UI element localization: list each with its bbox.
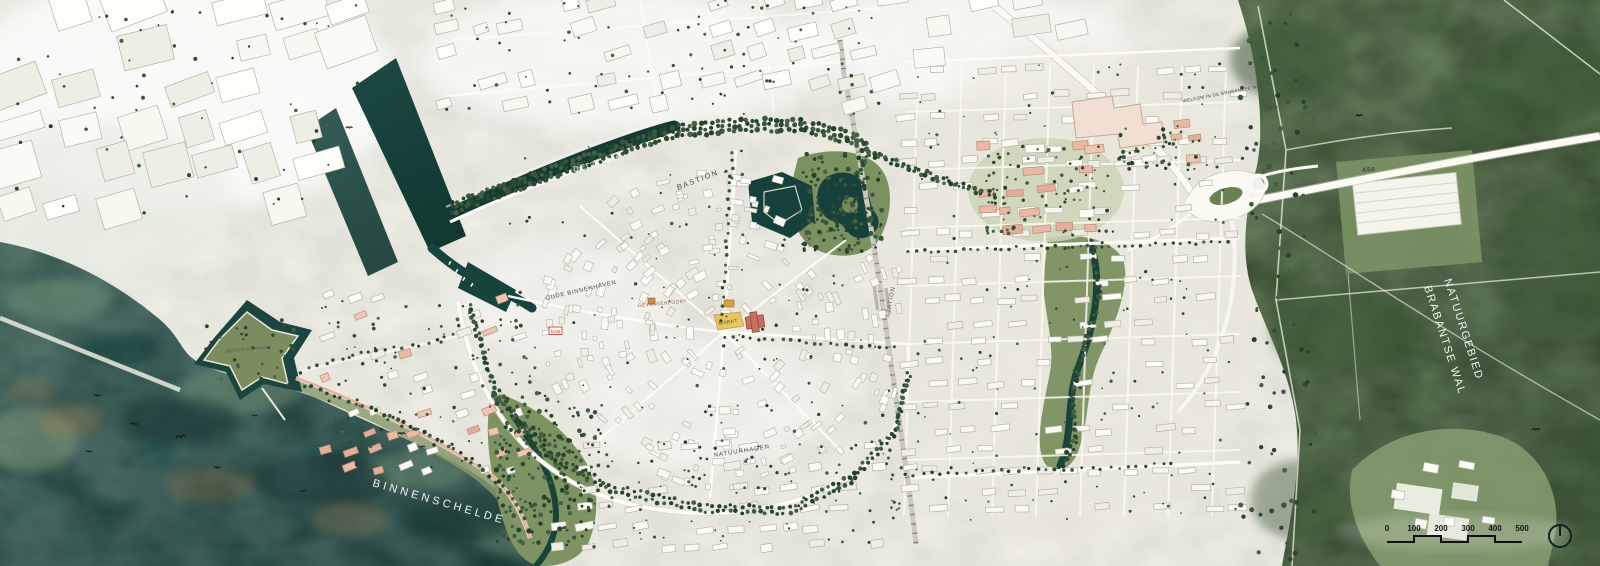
tree [578, 112, 580, 114]
tree [1226, 240, 1230, 244]
tree [861, 181, 865, 185]
tree [572, 321, 575, 324]
tree [211, 82, 213, 84]
tree [692, 121, 698, 127]
tree [469, 303, 472, 306]
tree [687, 470, 690, 473]
tree [1081, 358, 1085, 362]
tree [854, 143, 859, 148]
tree [813, 221, 816, 224]
building [848, 331, 855, 340]
tree [549, 414, 553, 418]
building [1088, 469, 1100, 476]
tree [853, 215, 857, 219]
tree [1075, 167, 1078, 170]
tree [500, 435, 502, 437]
tree [545, 409, 548, 412]
tree [1163, 462, 1166, 465]
tree [719, 128, 725, 134]
tree [1152, 405, 1155, 408]
tree [783, 238, 786, 241]
tree [299, 371, 302, 374]
building [1163, 92, 1182, 99]
tree [513, 413, 517, 417]
tree [509, 444, 512, 447]
tree [505, 397, 510, 402]
tree [1252, 148, 1255, 151]
tree [472, 358, 474, 360]
tree [816, 121, 821, 126]
tree [922, 472, 925, 475]
tree [581, 505, 584, 508]
tree [850, 447, 853, 450]
tree [588, 146, 590, 148]
tree [482, 356, 487, 361]
tree [831, 204, 836, 209]
tree [1151, 278, 1153, 280]
tree [965, 472, 968, 475]
tree [711, 511, 715, 515]
tree [954, 250, 957, 253]
tree [1156, 164, 1159, 167]
tree [325, 392, 329, 396]
building [658, 441, 672, 450]
tree [370, 446, 373, 449]
tree [475, 196, 480, 201]
tree [633, 490, 636, 493]
tree [539, 432, 544, 437]
tree [582, 474, 585, 477]
tree [854, 244, 857, 247]
tree [562, 478, 567, 483]
tree [761, 328, 764, 331]
tree [1071, 390, 1075, 394]
tree [1299, 347, 1304, 352]
tree [721, 286, 724, 289]
tree [1134, 380, 1137, 383]
tree [525, 442, 529, 446]
tree [720, 422, 722, 424]
tree [647, 131, 651, 135]
tree [1307, 350, 1310, 353]
tree [1062, 469, 1065, 472]
tree [800, 500, 803, 503]
tree [502, 474, 505, 477]
tree [825, 510, 828, 513]
tree [815, 497, 819, 501]
tree [1062, 147, 1065, 150]
tree [486, 27, 488, 29]
tree [714, 254, 716, 256]
tree [500, 410, 504, 414]
tree [1065, 198, 1067, 200]
tree [508, 49, 511, 52]
tree [233, 358, 237, 362]
tree [823, 170, 827, 174]
tree [994, 247, 997, 250]
building [903, 404, 917, 410]
tree [1301, 194, 1305, 198]
tree [986, 288, 989, 291]
building [1186, 154, 1200, 162]
tree [996, 134, 998, 136]
tree [668, 497, 671, 500]
building [901, 448, 916, 456]
tree [452, 447, 455, 450]
tree [992, 161, 995, 164]
tree [443, 335, 446, 338]
building [1174, 119, 1190, 129]
tree [953, 183, 957, 187]
tree [885, 346, 888, 349]
tree [923, 248, 927, 252]
tree [523, 430, 527, 434]
tree [631, 297, 633, 299]
tree [819, 452, 821, 454]
tree [380, 376, 383, 379]
tree [641, 134, 645, 138]
tree [916, 352, 919, 355]
tree [874, 346, 876, 348]
tree [723, 280, 726, 283]
tree [1165, 140, 1168, 143]
tree [900, 466, 903, 469]
tree [331, 358, 334, 361]
tree [380, 428, 384, 432]
tree [930, 470, 934, 474]
tree [1075, 441, 1078, 444]
tree [722, 344, 725, 347]
tree [728, 189, 731, 192]
tree [626, 493, 630, 497]
tree [620, 146, 625, 151]
tree [553, 439, 556, 442]
tree [1241, 515, 1245, 519]
tree [428, 434, 432, 438]
tree [788, 527, 790, 529]
tree [697, 130, 702, 135]
tree [512, 417, 516, 421]
tree [509, 428, 513, 432]
scale-tick-300: 300 [1461, 524, 1475, 533]
tree [1222, 221, 1225, 224]
tree [930, 251, 933, 254]
tree [822, 495, 826, 499]
tree [1255, 216, 1259, 220]
tree [903, 388, 907, 392]
tree [1045, 246, 1049, 250]
tree [806, 289, 809, 292]
building [930, 112, 944, 118]
tree [911, 474, 914, 477]
tree [534, 447, 538, 451]
tree [810, 131, 815, 136]
tree [1145, 161, 1148, 164]
tree [1168, 142, 1171, 145]
tree [1249, 125, 1253, 129]
tree [733, 120, 737, 124]
tree [516, 528, 521, 533]
tree [84, 128, 87, 131]
building [608, 317, 615, 323]
tree [853, 113, 855, 115]
tree [508, 505, 512, 509]
building [1014, 114, 1027, 120]
tree [847, 247, 850, 250]
tree [1055, 307, 1057, 309]
tree [630, 107, 633, 110]
tree [488, 380, 491, 383]
tree [714, 447, 717, 450]
tree [435, 438, 439, 442]
tree [1143, 492, 1145, 494]
tree [906, 250, 909, 253]
building [577, 502, 592, 511]
tree [873, 235, 877, 239]
tree [994, 132, 996, 134]
tree [608, 505, 610, 507]
tree [1117, 157, 1121, 161]
tree [1221, 189, 1224, 192]
tree [987, 201, 989, 203]
tree [555, 424, 557, 426]
tree [568, 72, 571, 75]
label-dab-text: DAB [551, 329, 560, 334]
tree [869, 215, 874, 220]
tree [845, 229, 848, 232]
tree [639, 532, 641, 534]
tree [670, 136, 674, 140]
tree [598, 479, 602, 483]
tree [1104, 229, 1107, 232]
tree [792, 129, 797, 134]
tree [766, 4, 769, 7]
tree [589, 415, 593, 419]
building [694, 465, 699, 471]
tree [1279, 526, 1283, 530]
tree [533, 509, 536, 512]
tree [512, 513, 517, 518]
tree [935, 179, 939, 183]
tree [770, 505, 774, 509]
tree [699, 127, 703, 131]
tree [1209, 473, 1211, 475]
tree [491, 186, 496, 191]
tree [568, 498, 572, 502]
tree [475, 202, 480, 207]
tree [723, 336, 726, 339]
tree [261, 363, 264, 366]
tree [929, 171, 933, 175]
tree [1293, 551, 1298, 556]
tree [997, 153, 1000, 156]
tree [901, 401, 905, 405]
tree [1007, 248, 1011, 252]
tree [535, 175, 539, 179]
tree [561, 465, 564, 468]
building [1226, 403, 1245, 410]
tree [219, 336, 222, 339]
tree [515, 404, 519, 408]
tree [756, 123, 760, 127]
tree [814, 133, 818, 137]
tree [341, 300, 343, 302]
tree [732, 129, 737, 134]
tree [1032, 499, 1034, 501]
tree [1180, 130, 1183, 133]
tree [351, 354, 354, 357]
tree [1097, 155, 1099, 157]
tree [839, 212, 844, 217]
tree [577, 428, 582, 433]
building [1146, 361, 1163, 367]
tree [501, 484, 505, 488]
tree [173, 44, 177, 48]
tree [491, 191, 495, 195]
tree [576, 156, 582, 162]
tree [515, 326, 518, 329]
tree [828, 227, 833, 232]
tree [1188, 86, 1191, 89]
tree [781, 512, 784, 515]
tree [733, 505, 737, 509]
tree [1289, 13, 1292, 16]
tree [888, 390, 890, 392]
tree [674, 133, 679, 138]
tree [1074, 428, 1078, 432]
tree [321, 307, 323, 309]
tree [725, 170, 728, 173]
tree [507, 407, 511, 411]
tree [1167, 505, 1170, 508]
tree [992, 230, 995, 233]
tree [548, 100, 551, 103]
tree [742, 53, 745, 56]
building [1037, 157, 1054, 164]
tree [701, 67, 703, 69]
tree [957, 185, 960, 188]
tree [1301, 100, 1305, 104]
building [1171, 134, 1182, 141]
tree [648, 233, 650, 235]
tree [462, 305, 464, 307]
tree [1238, 503, 1243, 508]
tree [468, 310, 472, 314]
tree [562, 221, 564, 223]
tree [505, 21, 507, 23]
tree [763, 337, 767, 341]
tree [355, 4, 357, 6]
tree [466, 193, 471, 198]
tree [948, 181, 953, 186]
tree [17, 58, 21, 62]
tree [1071, 409, 1076, 414]
tree [1079, 199, 1081, 201]
tree [1175, 156, 1177, 158]
tree [584, 468, 588, 472]
tree [1161, 127, 1165, 131]
tree [417, 345, 420, 348]
tree [869, 231, 874, 236]
tree [932, 478, 935, 481]
tree [685, 128, 689, 132]
tree [1215, 218, 1217, 220]
tree [193, 57, 197, 61]
tree [732, 335, 735, 338]
tree [710, 121, 715, 126]
tree [651, 493, 656, 498]
tree [558, 467, 562, 471]
tree [1125, 128, 1127, 130]
tree [972, 369, 974, 371]
label-dab: DAB [549, 327, 562, 335]
tree [1174, 139, 1176, 141]
tree [727, 118, 731, 122]
tree [1127, 465, 1130, 468]
tree [315, 363, 319, 367]
tree [479, 344, 483, 348]
tree [1245, 147, 1249, 151]
tree [1097, 145, 1100, 148]
tree [858, 466, 862, 470]
tree [685, 223, 688, 226]
tree [492, 380, 496, 384]
tree [789, 338, 793, 342]
tree [1278, 126, 1283, 131]
tree [355, 456, 358, 459]
tree [844, 201, 847, 204]
tree [1282, 370, 1286, 374]
tree [698, 477, 701, 480]
tree [1284, 325, 1287, 328]
tree [1090, 245, 1094, 249]
tree [609, 149, 613, 153]
scale-tick-0: 0 [1385, 524, 1390, 533]
tree [384, 348, 387, 351]
tree [518, 176, 523, 181]
tree [921, 178, 923, 180]
tree [719, 93, 722, 96]
tree [557, 453, 560, 456]
tree [805, 175, 808, 178]
tree [522, 421, 527, 426]
tree [691, 520, 693, 522]
tree [864, 161, 867, 164]
tree [393, 355, 396, 358]
tree [848, 226, 851, 229]
tree [890, 478, 892, 480]
tree [1259, 445, 1263, 449]
tree [565, 487, 568, 490]
tree [593, 410, 597, 414]
tree [670, 125, 676, 131]
tree [1164, 167, 1167, 170]
tree [767, 122, 771, 126]
tree [593, 473, 597, 477]
tree [427, 342, 430, 345]
tree [736, 33, 740, 37]
tree [1139, 277, 1141, 279]
tree [923, 173, 928, 178]
tree [861, 461, 865, 465]
tree [495, 401, 500, 406]
building [977, 358, 991, 366]
tree [879, 236, 884, 241]
tree [703, 474, 705, 476]
tree [765, 79, 768, 82]
tree [516, 448, 520, 452]
tree [120, 136, 122, 138]
